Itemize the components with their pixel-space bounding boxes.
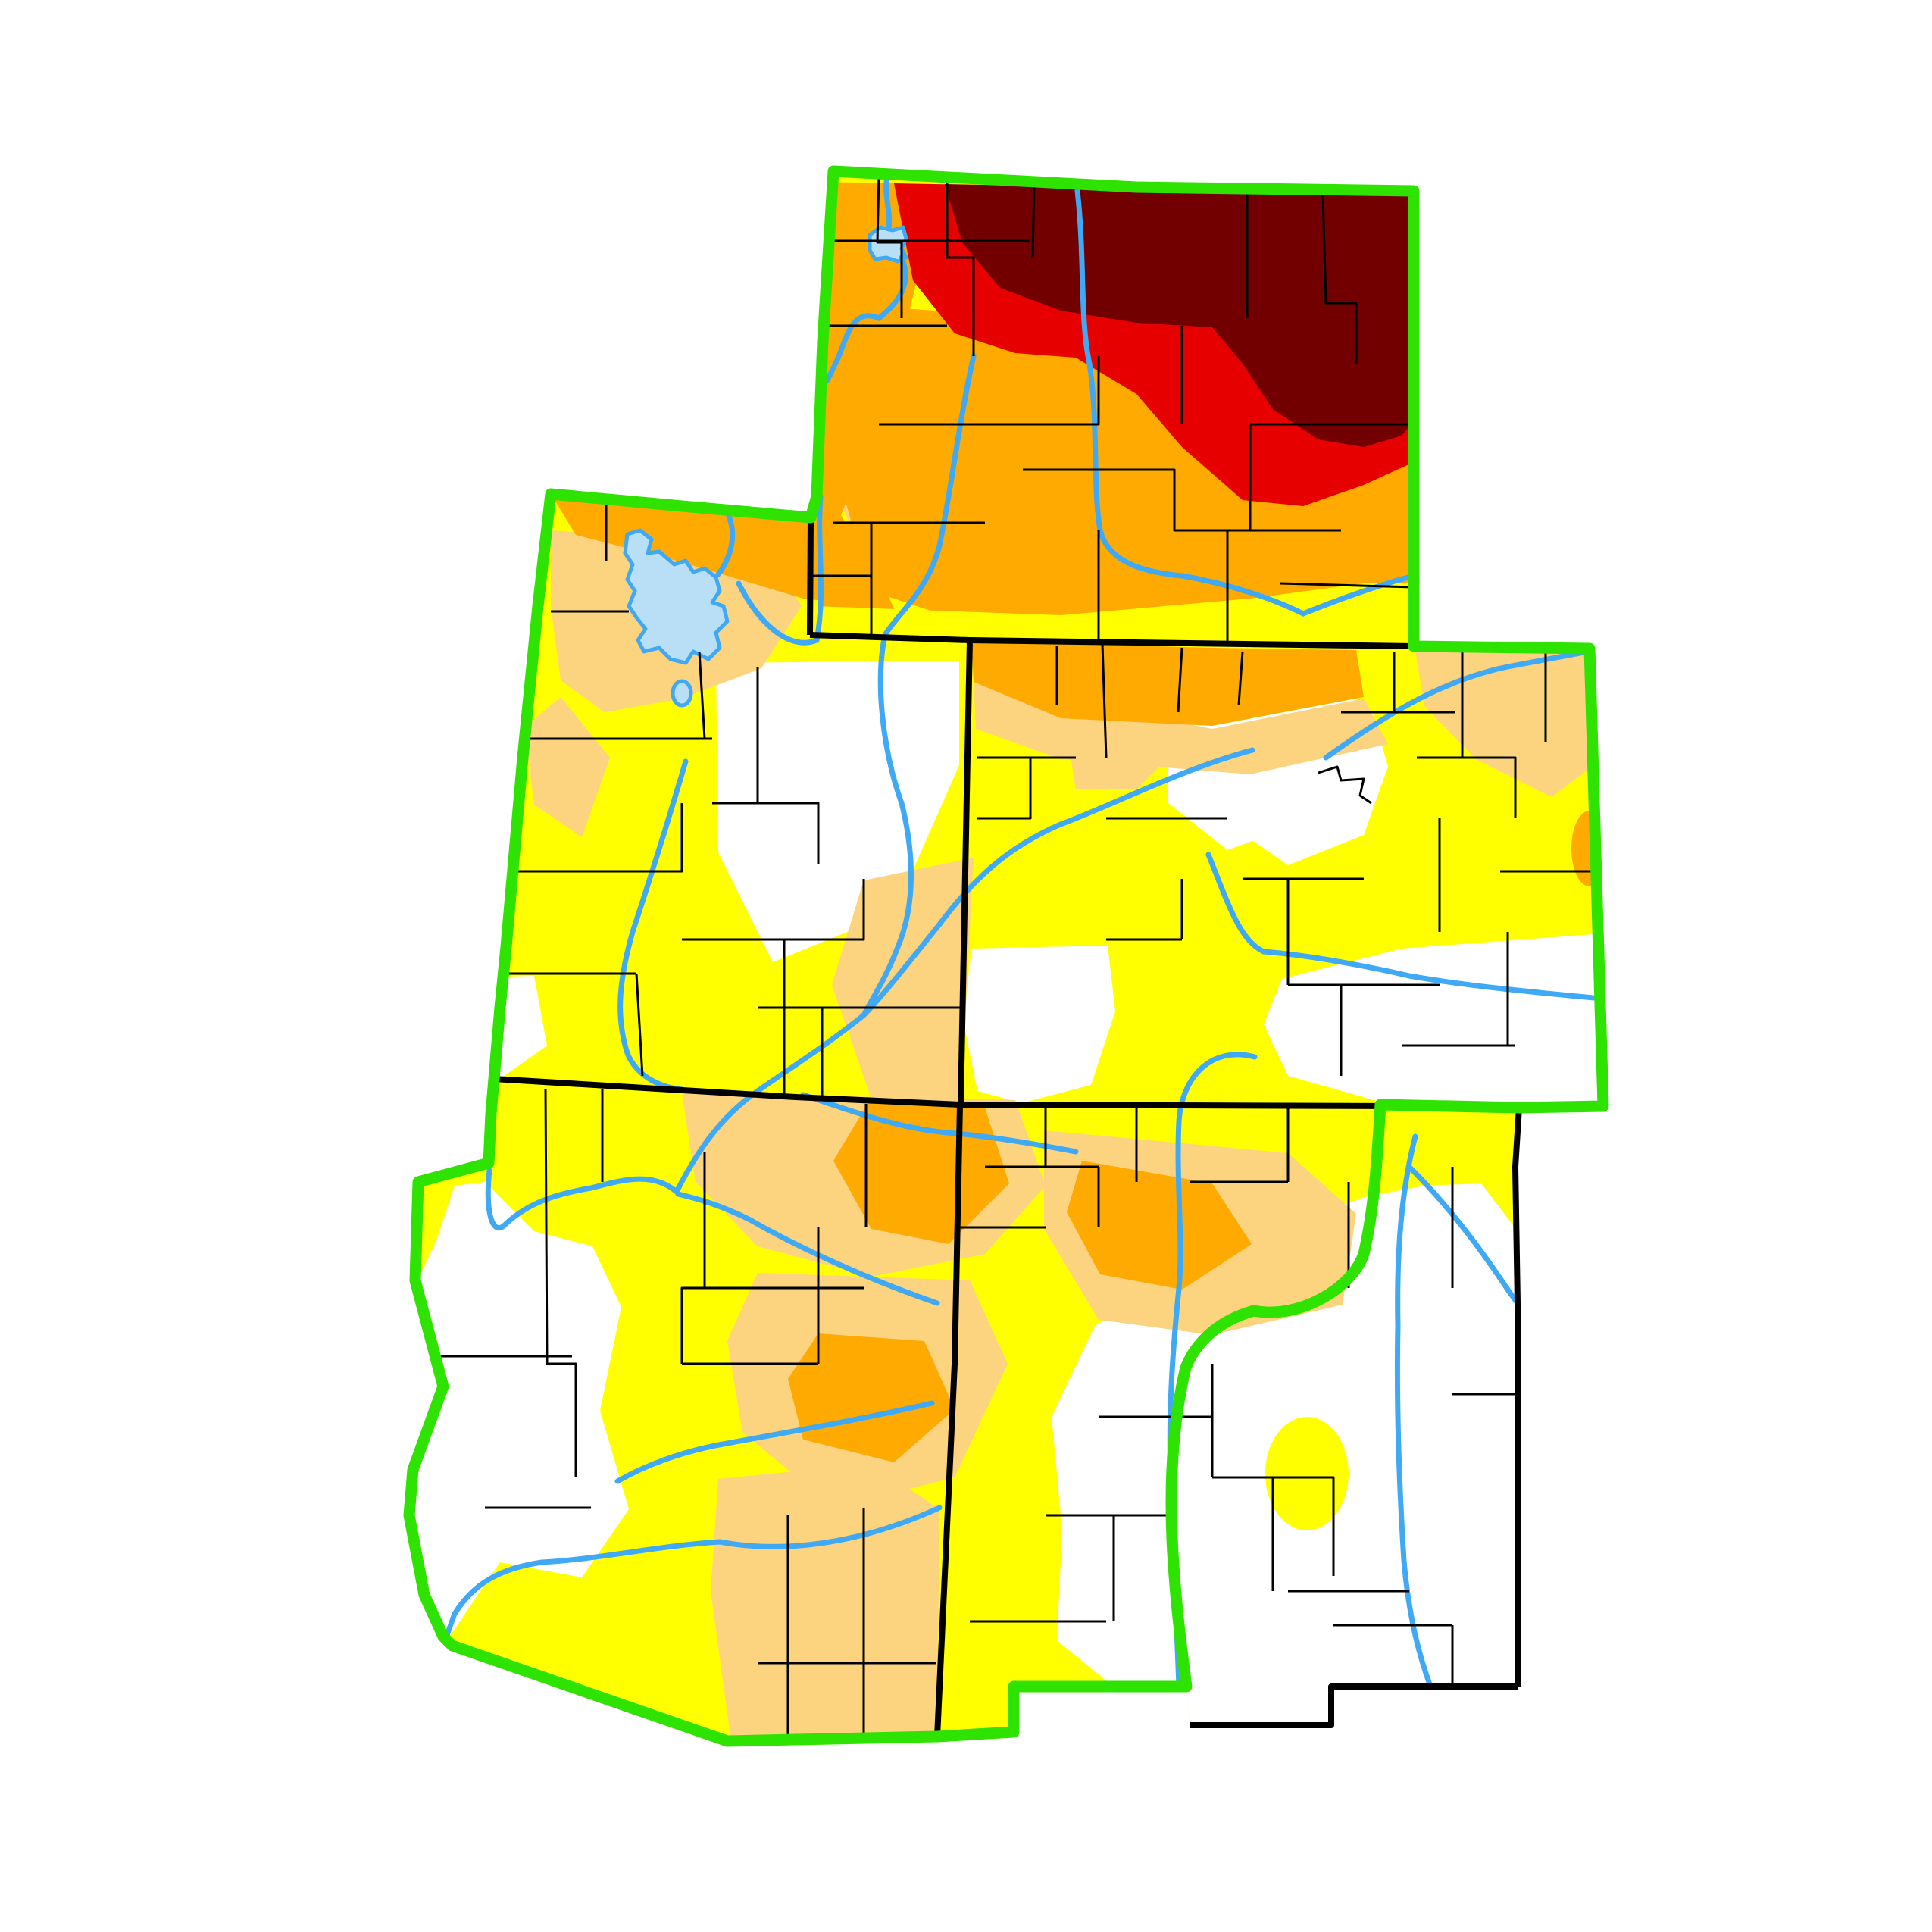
drought-map-svg bbox=[0, 0, 1932, 1932]
county-line bbox=[1033, 182, 1034, 258]
border-new-mexico-east bbox=[1515, 1108, 1519, 1687]
utah-lake bbox=[673, 681, 691, 705]
d1-arizona-south-band bbox=[711, 1464, 939, 1741]
d0-new-mexico-south-spot bbox=[1265, 1417, 1349, 1530]
none-colorado-san-luis bbox=[964, 946, 1115, 1103]
drought-map-canvas bbox=[0, 0, 1932, 1932]
yellowstone-river bbox=[886, 182, 889, 229]
border-utah-wyoming-notch bbox=[810, 517, 811, 635]
